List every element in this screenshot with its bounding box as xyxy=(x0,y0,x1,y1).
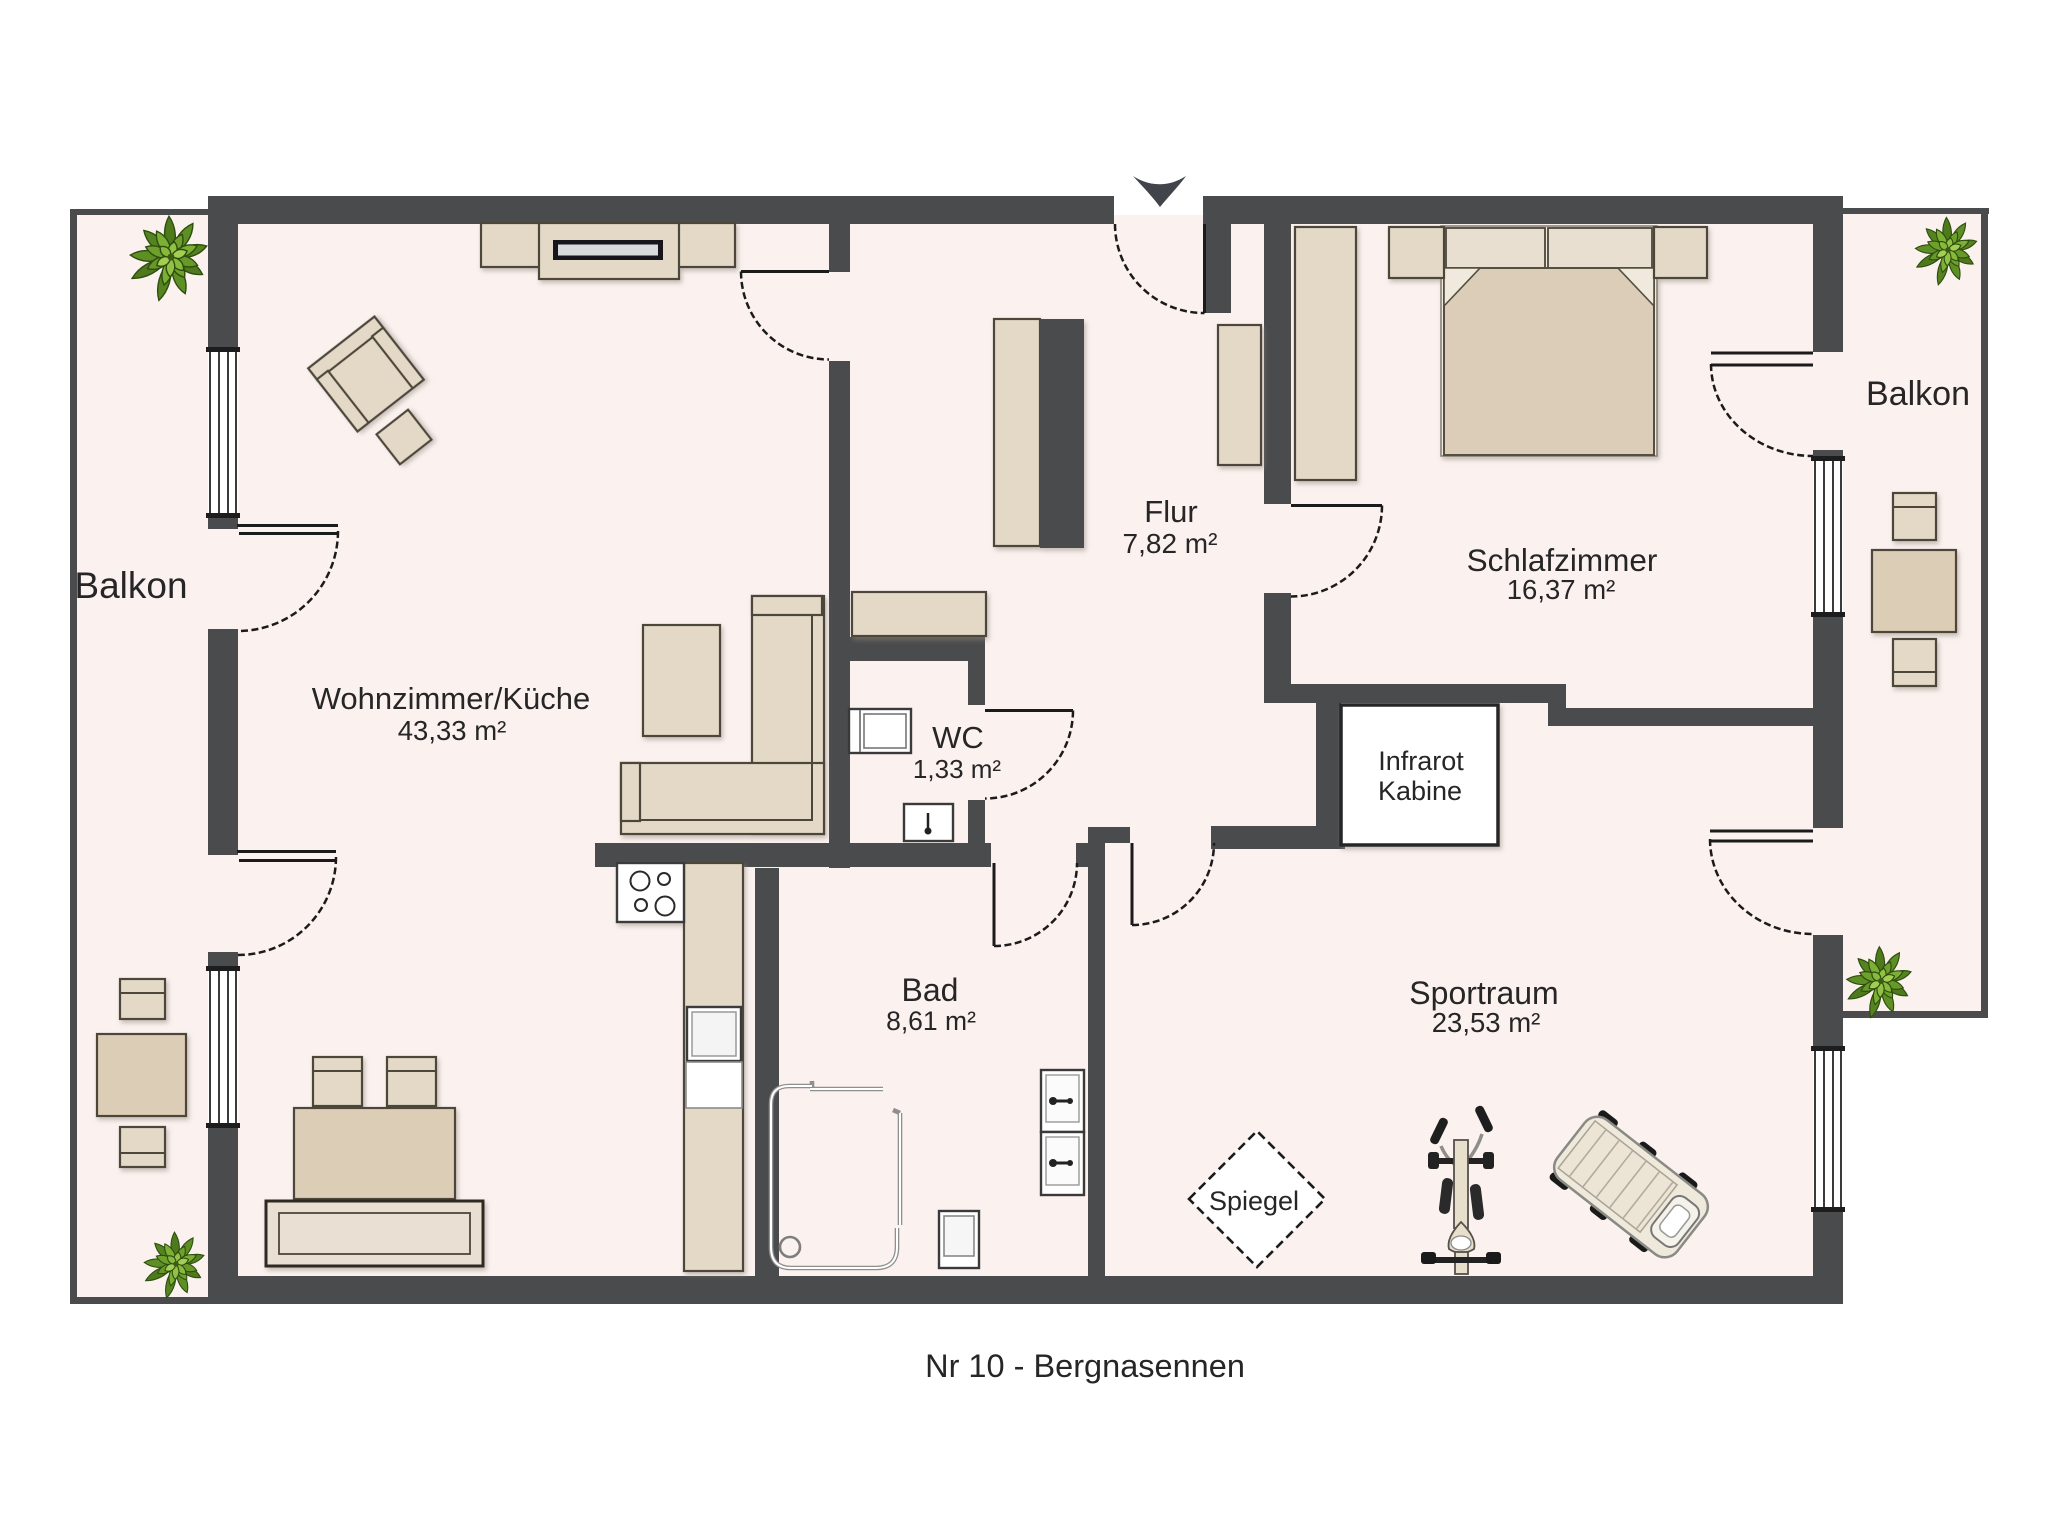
svg-text:7,82 m²: 7,82 m² xyxy=(1123,528,1218,559)
svg-text:Infrarot: Infrarot xyxy=(1378,746,1464,776)
svg-text:Balkon: Balkon xyxy=(74,565,187,606)
svg-text:16,37 m²: 16,37 m² xyxy=(1507,574,1616,605)
svg-text:Spiegel: Spiegel xyxy=(1209,1186,1299,1216)
svg-text:43,33 m²: 43,33 m² xyxy=(398,715,507,746)
svg-text:Balkon: Balkon xyxy=(1866,375,1970,413)
svg-text:8,61 m²: 8,61 m² xyxy=(886,1006,976,1036)
svg-text:1,33 m²: 1,33 m² xyxy=(913,754,1001,784)
svg-text:WC: WC xyxy=(932,720,984,755)
svg-text:Sportraum: Sportraum xyxy=(1409,975,1558,1011)
svg-text:Nr 10 - Bergnasennen: Nr 10 - Bergnasennen xyxy=(925,1348,1245,1384)
svg-text:Flur: Flur xyxy=(1144,494,1197,529)
svg-text:Schlafzimmer: Schlafzimmer xyxy=(1467,542,1658,578)
svg-text:Wohnzimmer/Küche: Wohnzimmer/Küche xyxy=(312,681,591,716)
svg-text:23,53 m²: 23,53 m² xyxy=(1432,1007,1541,1038)
svg-text:Kabine: Kabine xyxy=(1378,776,1462,806)
svg-text:Bad: Bad xyxy=(902,972,959,1008)
